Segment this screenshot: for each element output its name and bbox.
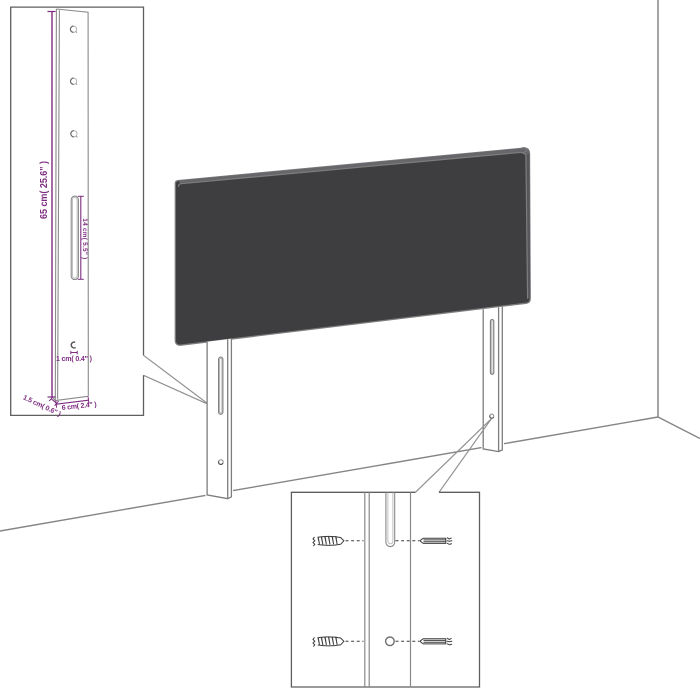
svg-text:65 cm( 25.6" ): 65 cm( 25.6" ) [39,161,50,219]
svg-text:14 cm( 5.5" ): 14 cm( 5.5" ) [81,218,88,259]
svg-text:1 cm( 0.4" ): 1 cm( 0.4" ) [56,356,92,363]
